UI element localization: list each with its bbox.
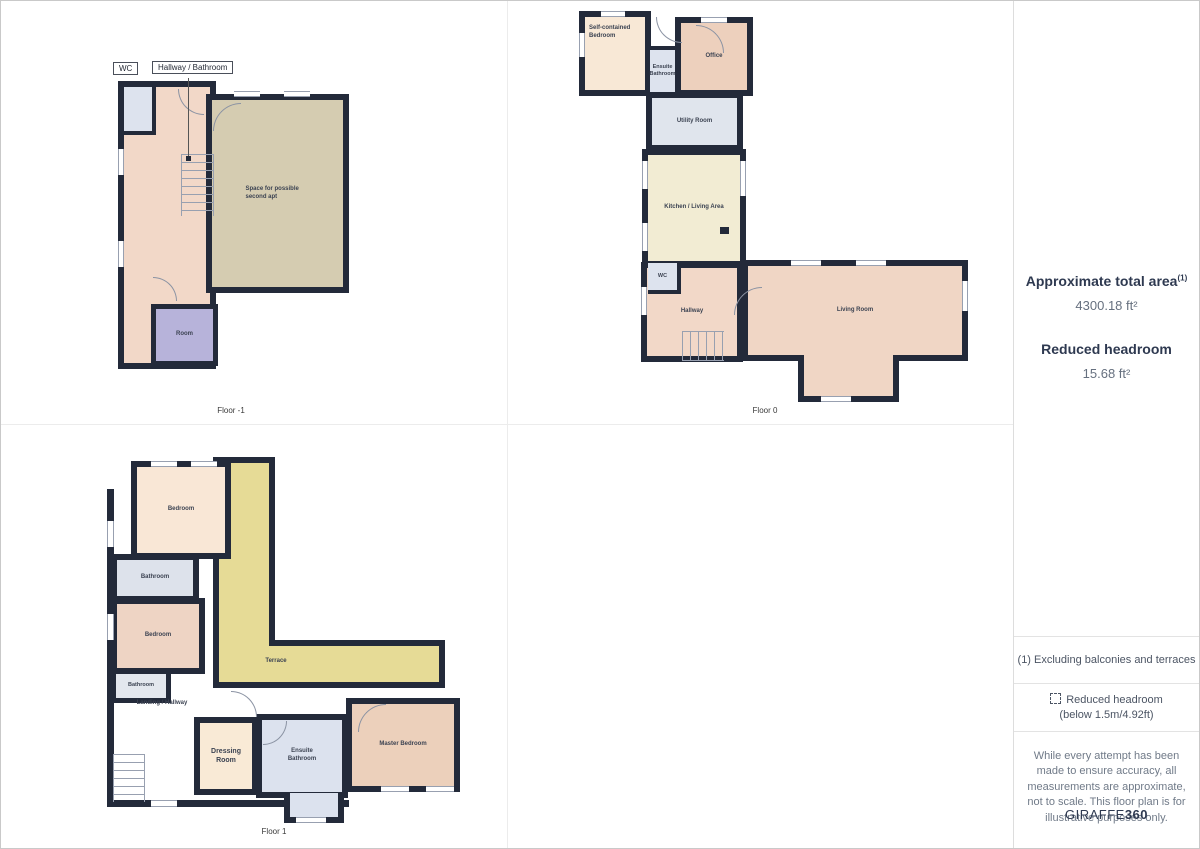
- sidebar-divider: [1014, 636, 1199, 637]
- brand-name: GIRAFFE: [1065, 807, 1125, 822]
- room-label-landing: Landing / Hallway: [117, 700, 207, 708]
- room-label: Office: [705, 53, 722, 61]
- brand-suffix: 360: [1125, 807, 1148, 822]
- room-wc: WC: [648, 263, 681, 294]
- window-marker: [191, 461, 217, 467]
- floor-0-plan: Self-contained Bedroom Ensuite Bathroom …: [508, 1, 1013, 424]
- window-marker: [118, 149, 124, 175]
- window-marker: [821, 396, 851, 402]
- window-marker: [641, 287, 647, 315]
- room-label: Bathroom: [128, 682, 154, 689]
- window-marker: [579, 33, 585, 57]
- room-label: Space for possible second apt: [246, 186, 310, 202]
- staircase: [181, 154, 214, 216]
- window-marker: [107, 521, 114, 547]
- room-ensuite-bathroom: Ensuite Bathroom: [646, 46, 679, 96]
- room-label: WC: [658, 273, 667, 280]
- area-summary: Approximate total area(1) 4300.18 ft² Re…: [1014, 273, 1199, 381]
- dashed-square-icon: [1050, 693, 1061, 704]
- room-dressing: Dressing Room: [194, 717, 258, 795]
- total-area-heading: Approximate total area(1): [1014, 273, 1199, 289]
- door-arc: [656, 17, 682, 43]
- window-marker: [601, 11, 625, 17]
- kitchen-fixture-mark: [720, 227, 729, 234]
- floor-caption: Floor -1: [131, 406, 331, 415]
- room-office: Office: [675, 17, 753, 96]
- room-label: Room: [176, 331, 193, 339]
- room-label: Dressing Room: [204, 747, 248, 765]
- window-marker: [791, 260, 821, 266]
- room-label: Utility Room: [677, 118, 712, 126]
- note-reduced-headroom: Reduced headroom (below 1.5m/4.92ft): [1014, 693, 1199, 723]
- room-label: Terrace: [241, 658, 311, 666]
- reduced-headroom-value: 15.68 ft²: [1014, 366, 1199, 381]
- window-marker: [642, 223, 648, 251]
- room-wc: [124, 87, 156, 135]
- room-living: Living Room: [742, 260, 968, 361]
- room-bedroom-top: Bedroom: [131, 461, 231, 559]
- note-headroom-line1: Reduced headroom: [1066, 694, 1163, 706]
- window-marker: [234, 91, 260, 97]
- room-label: Living Room: [837, 307, 873, 315]
- room-bathroom-2: Bathroom: [111, 669, 171, 703]
- room-bathroom-1: Bathroom: [111, 554, 199, 602]
- staircase: [682, 331, 724, 361]
- total-area-value: 4300.18 ft²: [1014, 298, 1199, 313]
- total-area-footnote-ref: (1): [1177, 273, 1187, 282]
- window-marker: [701, 17, 727, 23]
- room-bedroom-mid: Bedroom: [111, 598, 205, 674]
- note-excluding-terraces: (1) Excluding balconies and terraces: [1014, 653, 1199, 668]
- room-label: Master Bedroom: [379, 741, 426, 749]
- reduced-headroom-heading: Reduced headroom: [1014, 341, 1199, 357]
- sidebar-divider: [1014, 731, 1199, 732]
- window-marker: [107, 614, 114, 640]
- floor-1-plan: Terrace Bedroom Bathroom Bedroom Bathroo…: [1, 424, 508, 848]
- room-label: Bedroom: [168, 506, 194, 514]
- room-label: Bedroom: [145, 632, 171, 640]
- floorplan-page: WC Hallway / Bathroom Space for possible…: [0, 0, 1200, 849]
- total-area-label: Approximate total area: [1026, 273, 1178, 289]
- window-marker: [381, 786, 409, 792]
- callout-hallway-bathroom: Hallway / Bathroom: [152, 61, 233, 74]
- room-label: Kitchen / Living Area: [664, 204, 723, 212]
- window-marker: [740, 161, 746, 196]
- room-kitchen-living: Kitchen / Living Area: [642, 149, 746, 267]
- staircase: [113, 754, 145, 802]
- window-marker: [426, 786, 454, 792]
- room-label: Bathroom: [141, 574, 169, 582]
- room-master-bedroom: Master Bedroom: [346, 698, 460, 792]
- door-arc: [231, 691, 257, 717]
- window-marker: [962, 281, 968, 311]
- room-utility: Utility Room: [646, 92, 743, 151]
- callout-leader-line: [188, 78, 189, 157]
- window-marker: [642, 161, 648, 189]
- floor-minus1-plan: WC Hallway / Bathroom Space for possible…: [1, 1, 508, 424]
- window-marker: [118, 241, 124, 267]
- note-headroom-line2: (below 1.5m/4.92ft): [1059, 709, 1153, 721]
- room-basement-room: Room: [151, 304, 218, 366]
- room-label: Self-contained Bedroom: [589, 25, 641, 41]
- callout-leader-dot: [186, 156, 191, 161]
- brand-logo: GIRAFFE360: [1014, 807, 1199, 822]
- callout-wc: WC: [113, 62, 138, 75]
- floor-caption: Floor 0: [665, 406, 865, 415]
- room-label: Ensuite Bathroom: [650, 64, 676, 78]
- window-marker: [296, 817, 326, 823]
- window-marker: [284, 91, 310, 97]
- room-label: Ensuite Bathroom: [282, 748, 322, 764]
- window-marker: [151, 800, 177, 807]
- room-self-contained-bedroom: Self-contained Bedroom: [579, 11, 651, 96]
- floor-caption: Floor 1: [174, 827, 374, 836]
- window-marker: [856, 260, 886, 266]
- room-living-extension: [798, 355, 899, 402]
- window-marker: [151, 461, 177, 467]
- room-label: Hallway: [681, 308, 703, 316]
- sidebar-divider: [1014, 683, 1199, 684]
